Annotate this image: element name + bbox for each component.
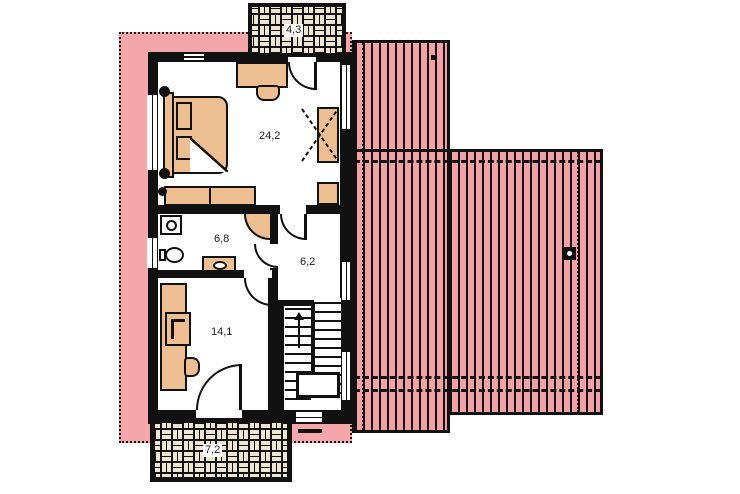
bathroom-sink-counter (202, 256, 236, 272)
roof-mark-small (431, 55, 436, 60)
roof-vent-marker (563, 247, 576, 260)
bedroom-desk-chair (256, 85, 280, 101)
room-desk-unit (165, 312, 191, 346)
stairs-right-window (342, 352, 350, 400)
nightstand-lamp-bottom (159, 168, 170, 179)
sofa-seat-left (164, 186, 211, 206)
balcony-door-leaf (314, 62, 317, 90)
terrace-threshold (198, 414, 240, 420)
stairs-up-arrow (294, 312, 304, 348)
hallway-area-label: 6,2 (300, 256, 315, 269)
bedroom-right-window (342, 65, 350, 129)
washing-machine (160, 215, 182, 235)
sofa-armrest (158, 187, 167, 196)
top-wall-vent (184, 52, 204, 62)
terrace-area-label: 7,2 (203, 444, 222, 457)
room-chair (184, 357, 200, 377)
bedroom-cabinet (317, 182, 339, 205)
nightstand-lamp-top (159, 86, 170, 97)
roof-ridge-line-bottom-1 (354, 376, 601, 379)
sink-basin (213, 261, 227, 270)
bed-blanket-fold (190, 138, 228, 172)
toilet (159, 247, 185, 263)
chimney-area-label: 4,3 (284, 24, 303, 37)
bed-pillow-1 (176, 102, 192, 130)
bedroom-left-window (147, 95, 157, 170)
room-area-label: 14,1 (211, 326, 232, 339)
roof-ridge-line-top (354, 160, 601, 163)
roof-ridge-line-bottom-2 (354, 389, 601, 392)
washing-machine-door (166, 220, 177, 231)
sofa-seat-right (209, 186, 256, 206)
terrace-door-leaf (239, 364, 242, 410)
bathroom-left-window (147, 238, 157, 268)
bathroom-area-label: 6,8 (214, 233, 229, 246)
below-stairs-mark (298, 429, 322, 433)
bedroom-wardrobe-cross (300, 107, 340, 163)
hallway-right-window (342, 262, 350, 300)
stairs-bottom-window (296, 412, 322, 422)
bedroom-door-leaf (304, 214, 307, 240)
roof-vent-dot (567, 251, 572, 256)
room-door-opening (244, 270, 272, 278)
stairs-landing-well (296, 372, 340, 398)
floor-plan-canvas: 4,3 7,2 24,2 6,8 (0, 0, 740, 494)
bedroom-area-label: 24,2 (259, 130, 280, 143)
bedroom-door-opening (280, 205, 306, 214)
roof-edge-dotted-left (362, 43, 364, 430)
roof-edge-dotted-right (577, 152, 579, 412)
